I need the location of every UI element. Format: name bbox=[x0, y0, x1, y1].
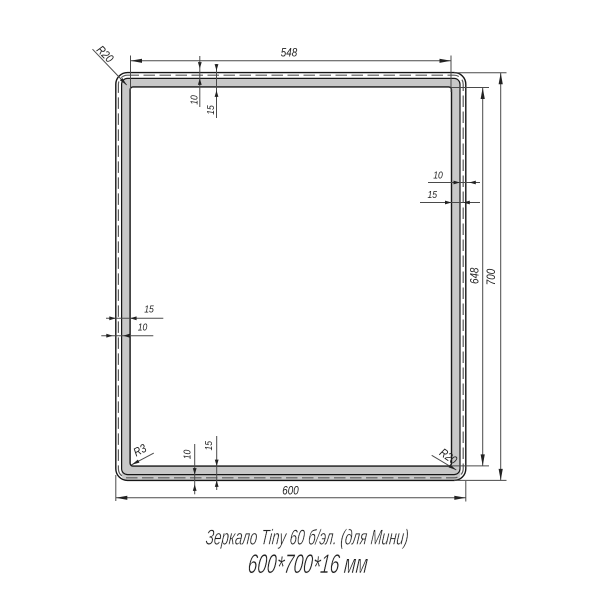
svg-text:10: 10 bbox=[189, 95, 201, 105]
svg-text:10: 10 bbox=[433, 170, 443, 182]
svg-text:548: 548 bbox=[281, 47, 298, 60]
svg-text:10: 10 bbox=[182, 449, 194, 459]
svg-text:Зеркало Tiny 60 б/эл. (для Мин: Зеркало Tiny 60 б/эл. (для Мини) bbox=[205, 525, 410, 549]
svg-text:15: 15 bbox=[203, 440, 215, 450]
svg-text:600: 600 bbox=[282, 485, 299, 498]
svg-text:10: 10 bbox=[138, 322, 148, 334]
svg-text:15: 15 bbox=[205, 105, 217, 115]
svg-text:700: 700 bbox=[485, 268, 498, 285]
svg-text:648: 648 bbox=[468, 267, 481, 284]
svg-text:15: 15 bbox=[144, 304, 154, 316]
svg-text:15: 15 bbox=[428, 189, 438, 201]
